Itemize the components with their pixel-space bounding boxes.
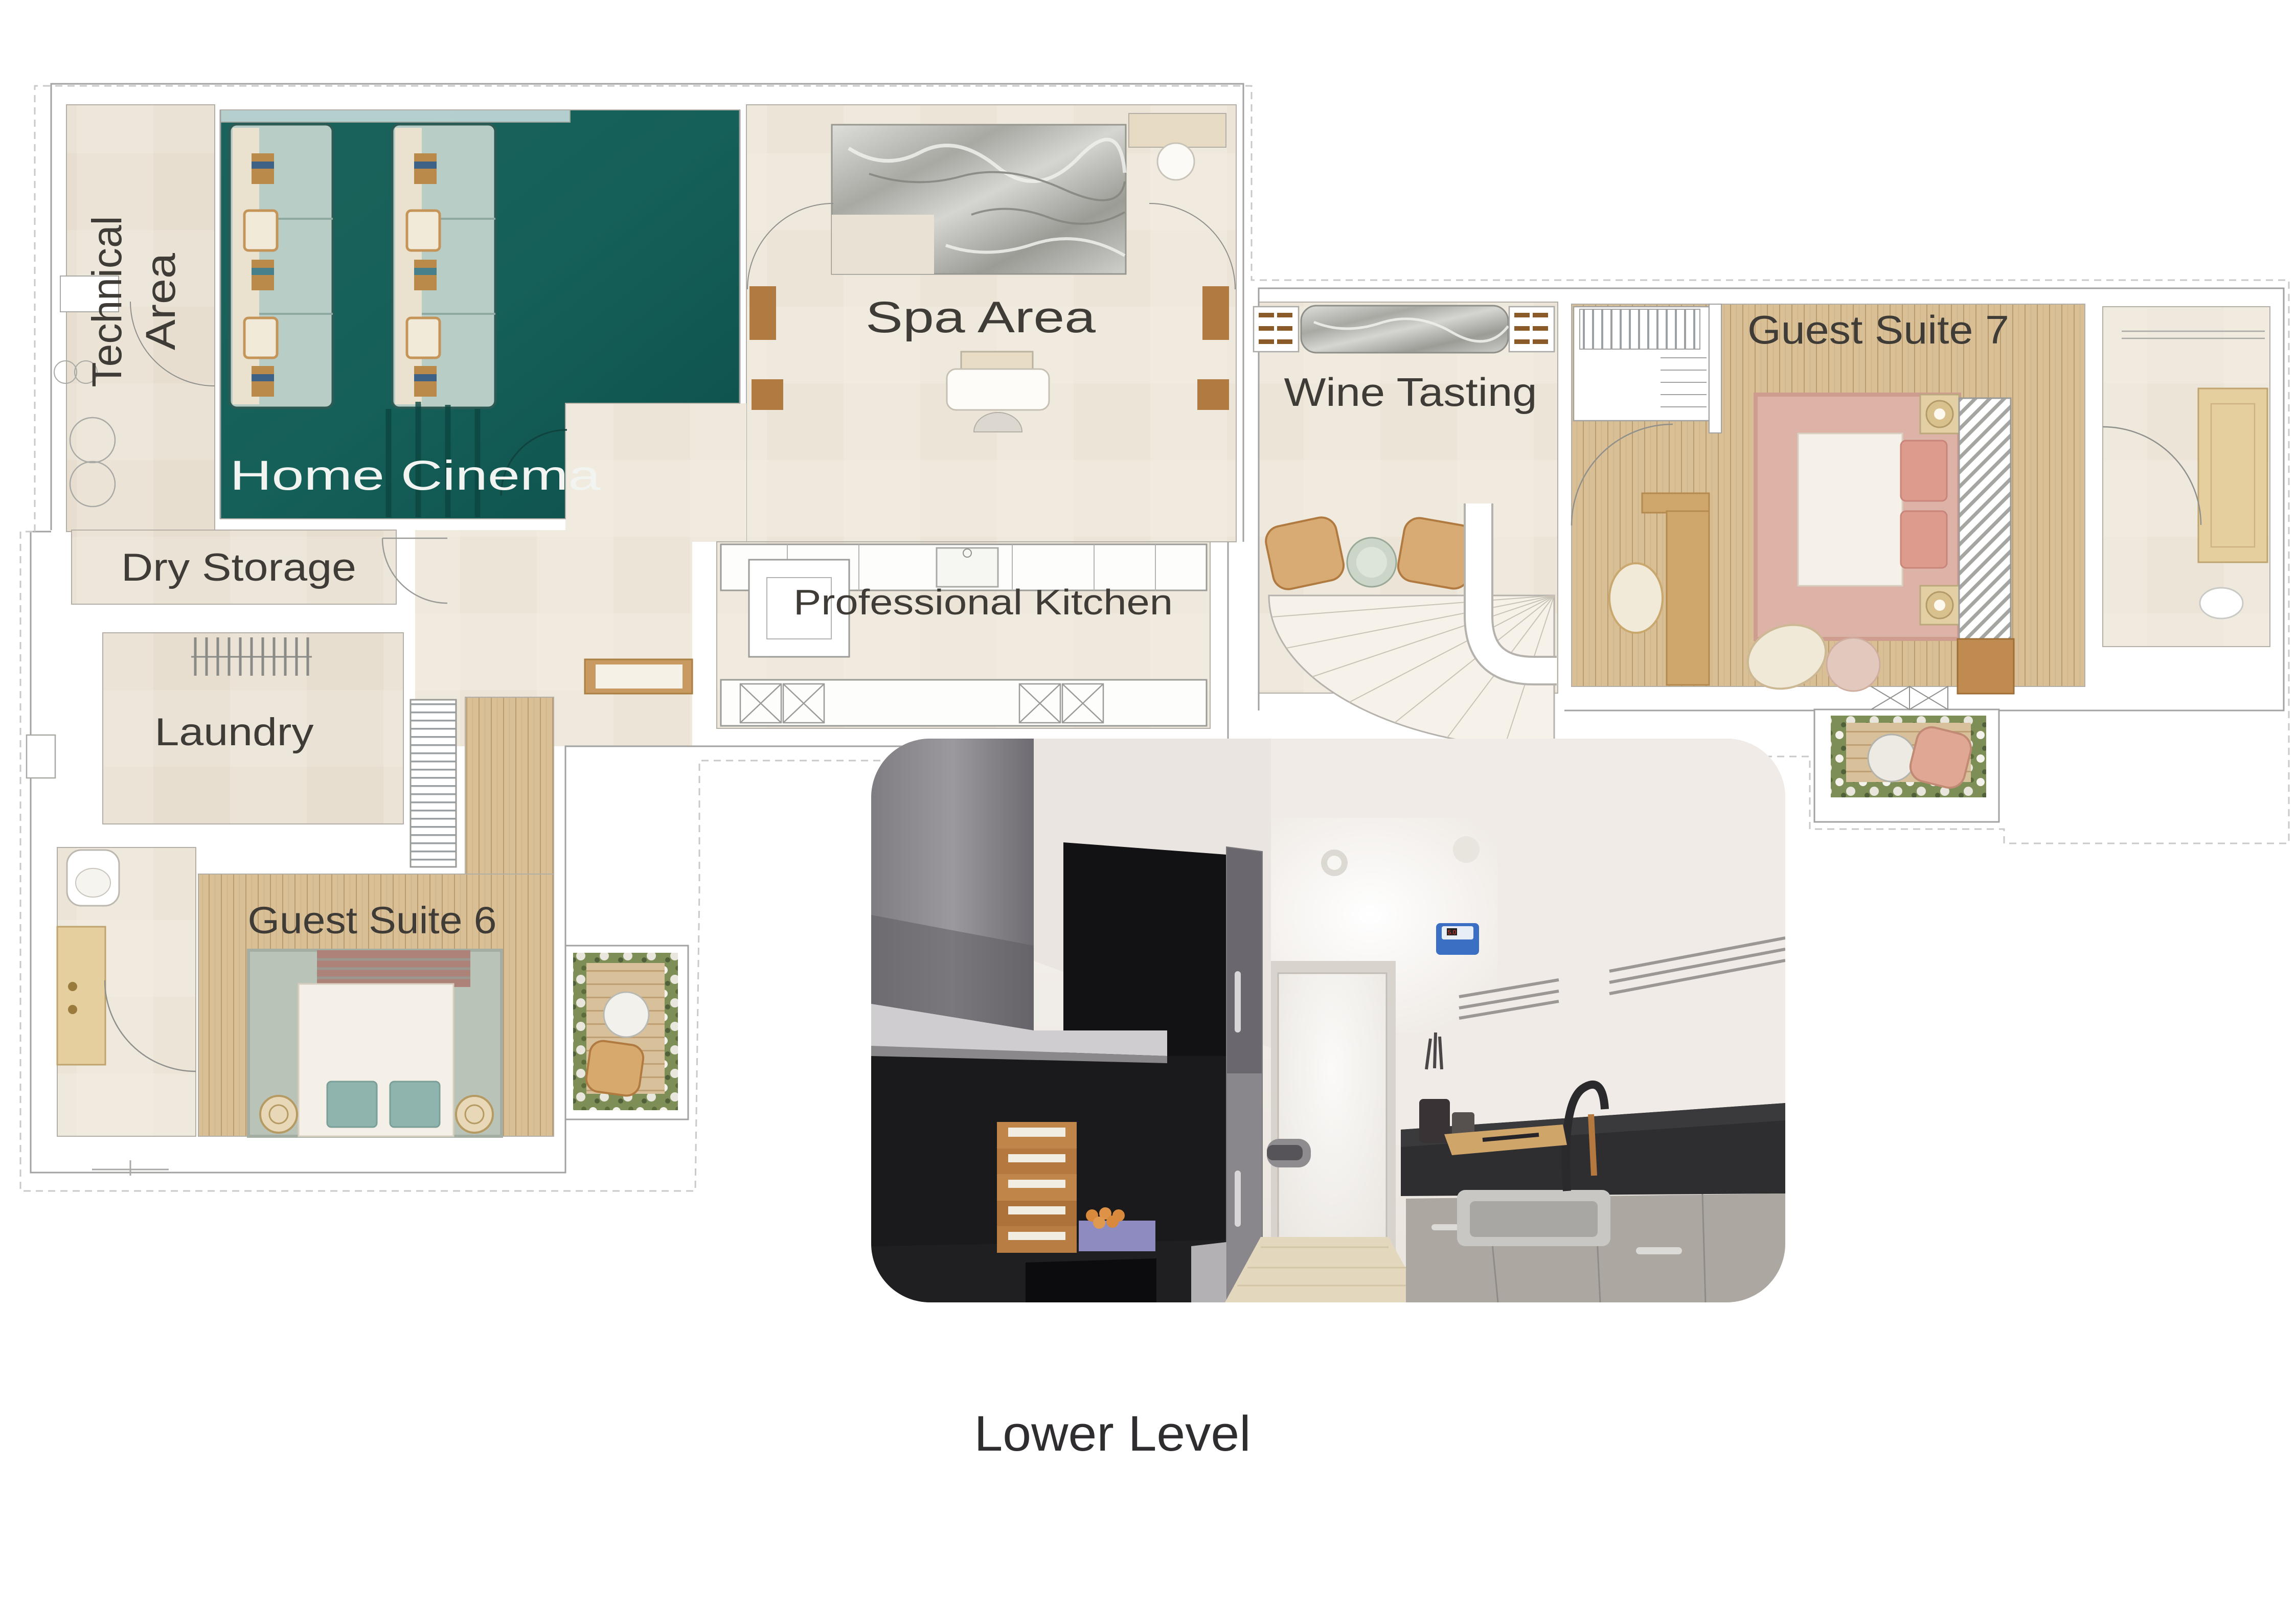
svg-text:Guest Suite 6: Guest Suite 6 (248, 899, 497, 942)
svg-text:Area: Area (138, 253, 184, 350)
svg-text:Dry Storage: Dry Storage (121, 546, 356, 589)
svg-text:Spa Area: Spa Area (866, 293, 1096, 342)
svg-text:Wine Tasting: Wine Tasting (1284, 370, 1537, 415)
svg-text:Technical: Technical (84, 216, 130, 387)
svg-text:Laundry: Laundry (155, 710, 314, 754)
svg-text:Professional Kitchen: Professional Kitchen (793, 582, 1173, 622)
svg-text:Lower Level: Lower Level (974, 1406, 1251, 1461)
svg-text:Home Cinema: Home Cinema (230, 452, 601, 499)
svg-text:5.0: 5.0 (1448, 929, 1457, 936)
svg-text:Guest Suite 7: Guest Suite 7 (1747, 307, 2009, 352)
